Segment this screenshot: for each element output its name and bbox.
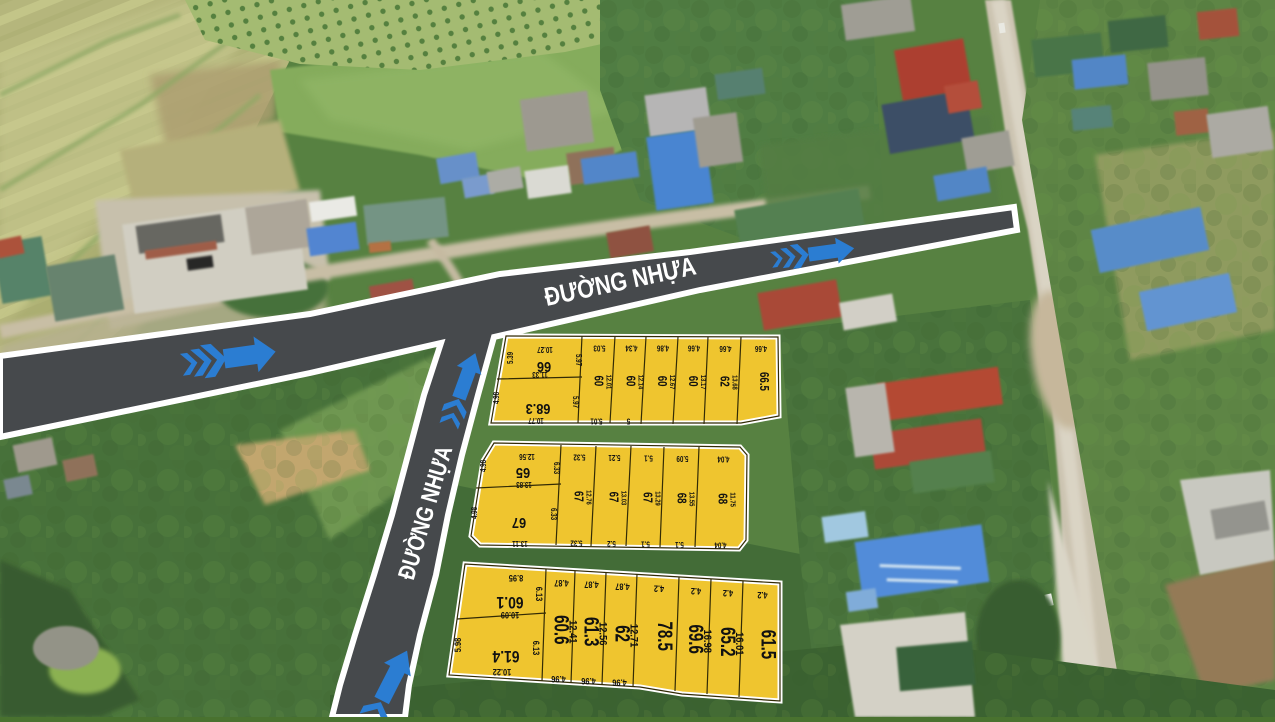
svg-text:60: 60 — [592, 375, 606, 386]
svg-text:4.66: 4.66 — [719, 344, 732, 353]
svg-text:13.55: 13.55 — [688, 492, 697, 507]
svg-text:5: 5 — [626, 417, 630, 426]
svg-text:4.2: 4.2 — [654, 583, 664, 594]
svg-text:16.98: 16.98 — [701, 630, 713, 653]
svg-text:11.75: 11.75 — [729, 492, 738, 507]
svg-text:5.97: 5.97 — [571, 396, 580, 409]
svg-text:4.87: 4.87 — [554, 577, 568, 588]
svg-text:6.13: 6.13 — [533, 587, 544, 601]
svg-text:13.17: 13.17 — [699, 375, 708, 390]
svg-text:5.1: 5.1 — [644, 454, 653, 463]
svg-text:4.04: 4.04 — [717, 455, 730, 464]
svg-text:67: 67 — [572, 491, 586, 502]
svg-text:68.3: 68.3 — [526, 400, 551, 417]
svg-text:10.09: 10.09 — [501, 609, 520, 620]
svg-text:5.98: 5.98 — [453, 638, 464, 652]
svg-text:6.33: 6.33 — [552, 462, 561, 475]
svg-text:13.83: 13.83 — [516, 480, 532, 489]
svg-text:4.96: 4.96 — [581, 675, 595, 686]
svg-text:6.33: 6.33 — [549, 508, 558, 521]
svg-text:67: 67 — [641, 492, 655, 503]
svg-text:12.14: 12.14 — [637, 375, 646, 390]
svg-text:12.71: 12.71 — [628, 624, 640, 647]
svg-text:11.33: 11.33 — [532, 370, 548, 379]
svg-text:12.76: 12.76 — [585, 490, 594, 505]
svg-text:5.01: 5.01 — [590, 416, 603, 425]
svg-text:62: 62 — [718, 376, 732, 387]
svg-text:12.01: 12.01 — [605, 375, 614, 390]
svg-text:66.5: 66.5 — [757, 372, 771, 391]
svg-text:10.27: 10.27 — [537, 345, 553, 354]
svg-text:5.09: 5.09 — [676, 454, 689, 463]
svg-text:4.2: 4.2 — [757, 589, 767, 600]
svg-text:61.4: 61.4 — [492, 647, 520, 666]
svg-text:4.87: 4.87 — [615, 580, 629, 591]
svg-text:4.86: 4.86 — [657, 344, 670, 353]
svg-text:4.2: 4.2 — [723, 587, 733, 598]
svg-text:68: 68 — [675, 493, 689, 504]
svg-text:13.03: 13.03 — [620, 491, 629, 506]
svg-text:5.1: 5.1 — [675, 540, 684, 549]
svg-text:5.03: 5.03 — [593, 343, 606, 352]
svg-text:8.95: 8.95 — [508, 572, 523, 583]
svg-text:4.04: 4.04 — [714, 541, 727, 550]
svg-text:5.21: 5.21 — [608, 453, 621, 462]
svg-text:13.11: 13.11 — [512, 539, 528, 548]
svg-text:5.1: 5.1 — [641, 540, 650, 549]
svg-text:6.13: 6.13 — [530, 641, 541, 655]
svg-text:60: 60 — [686, 376, 700, 387]
svg-text:78.5: 78.5 — [653, 622, 676, 652]
svg-text:10.22: 10.22 — [493, 666, 512, 677]
svg-text:65: 65 — [516, 464, 530, 481]
svg-text:60: 60 — [655, 376, 669, 387]
svg-text:60: 60 — [624, 376, 638, 387]
svg-text:4.96: 4.96 — [551, 673, 565, 684]
svg-text:13.68: 13.68 — [731, 375, 740, 390]
svg-text:5.2: 5.2 — [607, 539, 616, 548]
svg-text:12.56: 12.56 — [597, 622, 609, 645]
svg-text:16.01: 16.01 — [733, 632, 745, 655]
svg-text:10.77: 10.77 — [528, 416, 544, 425]
svg-text:5.32: 5.32 — [570, 539, 583, 548]
svg-text:67: 67 — [512, 514, 526, 531]
svg-text:12.41: 12.41 — [567, 620, 579, 643]
svg-text:4.98: 4.98 — [479, 460, 488, 473]
svg-text:68: 68 — [716, 493, 730, 504]
svg-text:13.29: 13.29 — [654, 491, 663, 506]
svg-text:4.96: 4.96 — [612, 677, 626, 688]
svg-text:12.56: 12.56 — [519, 452, 535, 461]
svg-text:4.98: 4.98 — [470, 507, 479, 520]
svg-text:67: 67 — [607, 492, 621, 503]
svg-text:5.39: 5.39 — [506, 352, 515, 365]
svg-text:4.66: 4.66 — [755, 344, 768, 353]
svg-text:4.2: 4.2 — [691, 585, 701, 596]
svg-text:61.5: 61.5 — [757, 630, 780, 660]
svg-text:5.97: 5.97 — [574, 354, 583, 367]
svg-text:4.34: 4.34 — [625, 344, 638, 353]
svg-text:4.98: 4.98 — [492, 392, 501, 405]
svg-text:4.66: 4.66 — [688, 344, 701, 353]
svg-text:12.67: 12.67 — [668, 375, 677, 390]
svg-text:5.32: 5.32 — [573, 452, 586, 461]
svg-text:4.87: 4.87 — [584, 579, 598, 590]
